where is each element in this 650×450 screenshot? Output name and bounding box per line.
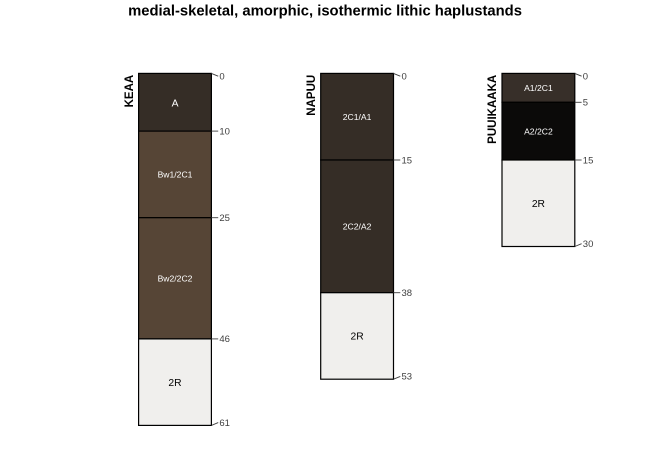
svg-text:2R: 2R [168,378,181,389]
svg-text:2R: 2R [351,332,364,343]
svg-text:2R: 2R [532,199,545,210]
svg-text:5: 5 [583,98,588,109]
svg-text:Bw1/2C1: Bw1/2C1 [158,170,193,180]
svg-text:A1/2C1: A1/2C1 [524,83,553,93]
svg-text:38: 38 [402,288,413,299]
svg-text:2C2/A2: 2C2/A2 [343,222,372,232]
svg-text:25: 25 [219,213,230,224]
svg-text:NAPUU: NAPUU [306,75,318,116]
svg-text:0: 0 [402,72,407,83]
svg-text:0: 0 [219,72,224,83]
svg-text:53: 53 [402,372,413,383]
svg-text:61: 61 [219,418,230,429]
svg-text:KEAA: KEAA [124,75,136,108]
svg-text:46: 46 [219,334,230,345]
svg-text:A2/2C2: A2/2C2 [524,127,553,137]
svg-text:30: 30 [583,239,594,250]
svg-text:2C1/A1: 2C1/A1 [343,112,372,122]
svg-text:Bw2/2C2: Bw2/2C2 [158,274,193,284]
svg-text:PUUIKAAKA: PUUIKAAKA [487,75,499,144]
svg-text:A: A [172,99,179,110]
svg-text:medial-skeletal, amorphic, iso: medial-skeletal, amorphic, isothermic li… [128,4,522,20]
svg-text:15: 15 [402,155,413,166]
svg-text:0: 0 [583,72,588,83]
svg-text:10: 10 [219,126,230,137]
svg-text:15: 15 [583,155,594,166]
